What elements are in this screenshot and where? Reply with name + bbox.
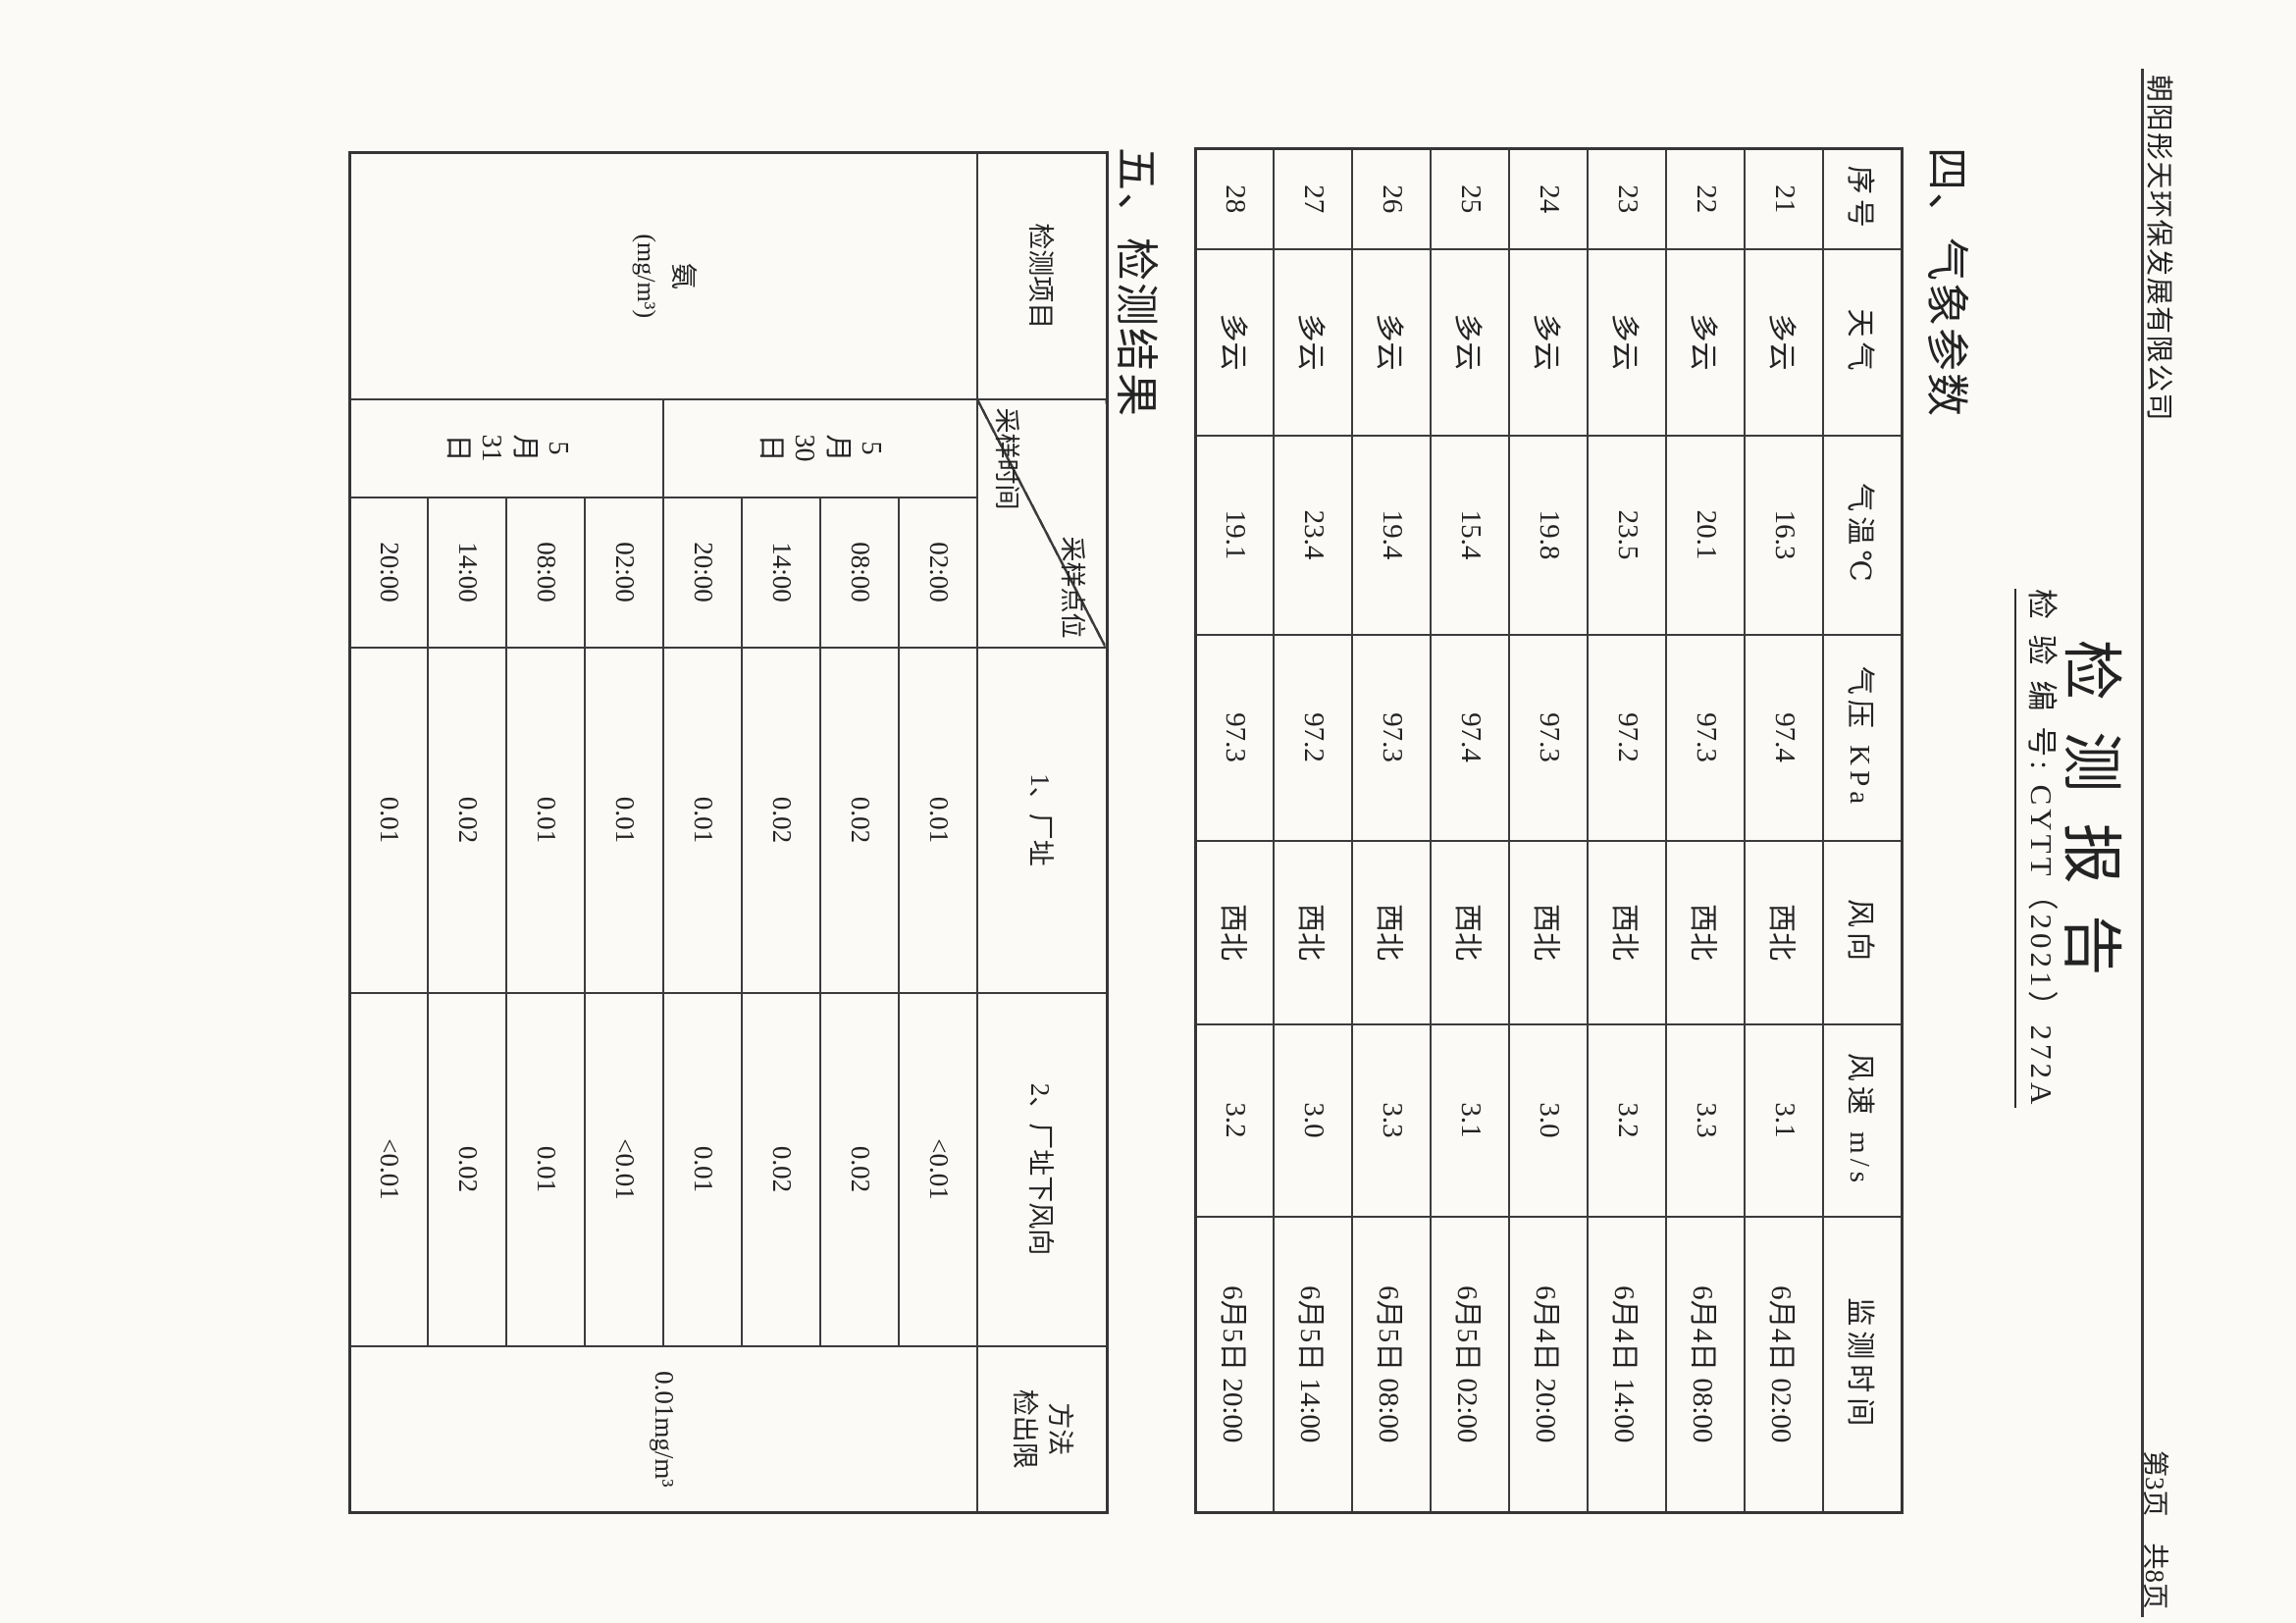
cell-temp: 23.4 [1275,436,1353,635]
cell-pressure: 97.2 [1275,635,1353,841]
cell-wind-speed: 3.0 [1510,1024,1589,1217]
cell-time: 20:00 [350,497,429,648]
cell-wind-dir: 西北 [1510,841,1589,1024]
weather-table-header-row: 序号 天气 气温℃ 气压 KPa 风向 风速 m/s 监测时间 [1824,149,1903,1513]
cell-time: 08:00 [821,497,900,648]
section-heading-results: 五、检测结果 [1109,147,1172,418]
cell-pressure: 97.4 [1432,635,1510,841]
table-row: 23 多云 23.5 97.2 西北 3.2 6月4日 14:00 [1589,149,1667,1513]
cell-seq: 27 [1275,149,1353,249]
cell-seq: 26 [1353,149,1432,249]
cell-temp: 19.4 [1353,436,1432,635]
cell-wind-speed: 3.3 [1667,1024,1746,1217]
col-header-seq: 序号 [1824,149,1903,249]
result-table-header-row: 检测项目 采样点位 采样时间 1、厂址 2、厂址下风向 方法 检出限 [978,153,1108,1513]
diagonal-label-sampling-point: 采样点位 [1056,536,1092,638]
cell-seq: 25 [1432,149,1510,249]
table-row: 21 多云 16.3 97.4 西北 3.1 6月4日 02:00 [1746,149,1824,1513]
cell-time: 02:00 [900,497,978,648]
col-header-temp: 气温℃ [1824,436,1903,635]
cell-time: 6月5日 08:00 [1353,1217,1432,1513]
cell-pressure: 97.3 [1196,635,1275,841]
cell-seq: 23 [1589,149,1667,249]
cell-time: 6月4日 14:00 [1589,1217,1667,1513]
col-header-site1: 1、厂址 [978,648,1108,993]
cell-time: 6月5日 20:00 [1196,1217,1275,1513]
cell-temp: 15.4 [1432,436,1510,635]
table-row: 28 多云 19.1 97.3 西北 3.2 6月5日 20:00 [1196,149,1275,1513]
cell-site2-value: <0.01 [900,993,978,1346]
cell-weather: 多云 [1589,249,1667,436]
result-table: 检测项目 采样点位 采样时间 1、厂址 2、厂址下风向 方法 检出限 氨 (mg… [348,151,1109,1514]
cell-wind-dir: 西北 [1667,841,1746,1024]
cell-wind-dir: 西北 [1353,841,1432,1024]
detection-limit-value-cell: 0.01mg/m³ [350,1346,978,1513]
cell-site1-value: 0.02 [743,648,821,993]
cell-temp: 20.1 [1667,436,1746,635]
cell-wind-speed: 3.2 [1589,1024,1667,1217]
cell-wind-dir: 西北 [1432,841,1510,1024]
diagonal-label-sampling-time: 采样时间 [991,408,1027,510]
cell-wind-speed: 3.3 [1353,1024,1432,1217]
scanned-report-page: 朝阳彤天环保发展有限公司 第3页 共8页 检 测 报 告 检 验 编 号: CY… [0,0,2296,1623]
cell-seq: 21 [1746,149,1824,249]
cell-site1-value: 0.01 [586,648,664,993]
cell-time: 20:00 [664,497,743,648]
cell-wind-speed: 3.2 [1196,1024,1275,1217]
weather-table: 序号 天气 气温℃ 气压 KPa 风向 风速 m/s 监测时间 21 多云 16… [1194,147,1904,1514]
cell-site2-value: <0.01 [350,993,429,1346]
cell-wind-dir: 西北 [1275,841,1353,1024]
detection-limit-line2: 检出限 [1007,1347,1042,1512]
cell-seq: 28 [1196,149,1275,249]
company-name: 朝阳彤天环保发展有限公司 [2141,75,2180,422]
cell-weather: 多云 [1667,249,1746,436]
col-header-site2: 2、厂址下风向 [978,993,1108,1346]
cell-site1-value: 0.01 [900,648,978,993]
cell-time: 08:00 [507,497,586,648]
cell-weather: 多云 [1432,249,1510,436]
table-row: 24 多云 19.8 97.3 西北 3.0 6月4日 20:00 [1510,149,1589,1513]
col-header-weather: 天气 [1824,249,1903,436]
cell-time: 6月5日 14:00 [1275,1217,1353,1513]
col-header-wind-speed: 风速 m/s [1824,1024,1903,1217]
cell-time: 02:00 [586,497,664,648]
sample-item-cell: 氨 (mg/m³) [350,153,978,399]
detection-limit-line1: 方法 [1042,1347,1077,1512]
cell-time: 6月4日 20:00 [1510,1217,1589,1513]
cell-site2-value: 0.01 [664,993,743,1346]
cell-site1-value: 0.01 [664,648,743,993]
sample-item-unit: (mg/m³) [627,154,664,398]
cell-site2-value: 0.02 [743,993,821,1346]
cell-site1-value: 0.01 [507,648,586,993]
table-row: 22 多云 20.1 97.3 西北 3.3 6月4日 08:00 [1667,149,1746,1513]
cell-temp: 23.5 [1589,436,1667,635]
col-header-detection-limit: 方法 检出限 [978,1346,1108,1513]
cell-wind-speed: 3.1 [1746,1024,1824,1217]
cell-weather: 多云 [1196,249,1275,436]
cell-wind-speed: 3.0 [1275,1024,1353,1217]
sample-item-name: 氨 [664,154,702,398]
diagonal-header-cell: 采样点位 采样时间 [978,399,1108,648]
cell-temp: 19.8 [1510,436,1589,635]
cell-pressure: 97.3 [1667,635,1746,841]
cell-time: 14:00 [743,497,821,648]
cell-weather: 多云 [1353,249,1432,436]
cell-seq: 24 [1510,149,1589,249]
cell-site1-value: 0.01 [350,648,429,993]
section-heading-weather: 四、气象参数 [1919,147,1982,418]
cell-weather: 多云 [1275,249,1353,436]
cell-site2-value: <0.01 [586,993,664,1346]
cell-wind-dir: 西北 [1196,841,1275,1024]
date-cell-may31: 5 月 31 日 [350,399,664,497]
cell-wind-dir: 西北 [1589,841,1667,1024]
col-header-time: 监测时间 [1824,1217,1903,1513]
table-row: 25 多云 15.4 97.4 西北 3.1 6月5日 02:00 [1432,149,1510,1513]
cell-wind-speed: 3.1 [1432,1024,1510,1217]
cell-wind-dir: 西北 [1746,841,1824,1024]
cell-site1-value: 0.02 [821,648,900,993]
cell-time: 6月4日 02:00 [1746,1217,1824,1513]
cell-weather: 多云 [1510,249,1589,436]
cell-time: 14:00 [429,497,507,648]
date-cell-may30: 5 月 30 日 [664,399,978,497]
cell-site2-value: 0.02 [821,993,900,1346]
table-row: 氨 (mg/m³) 5 月 30 日 02:00 0.01 <0.01 0.01… [900,153,978,1513]
col-header-pressure: 气压 KPa [1824,635,1903,841]
col-header-item: 检测项目 [978,153,1108,399]
col-header-wind-dir: 风向 [1824,841,1903,1024]
cell-pressure: 97.3 [1353,635,1432,841]
cell-time: 6月5日 02:00 [1432,1217,1510,1513]
cell-site2-value: 0.02 [429,993,507,1346]
cell-pressure: 97.2 [1589,635,1667,841]
cell-temp: 16.3 [1746,436,1824,635]
cell-pressure: 97.3 [1510,635,1589,841]
cell-site2-value: 0.01 [507,993,586,1346]
cell-weather: 多云 [1746,249,1824,436]
cell-time: 6月4日 08:00 [1667,1217,1746,1513]
cell-temp: 19.1 [1196,436,1275,635]
cell-pressure: 97.4 [1746,635,1824,841]
cell-site1-value: 0.02 [429,648,507,993]
cell-seq: 22 [1667,149,1746,249]
header-rule [2141,69,2144,1617]
table-row: 27 多云 23.4 97.2 西北 3.0 6月5日 14:00 [1275,149,1353,1513]
table-row: 26 多云 19.4 97.3 西北 3.3 6月5日 08:00 [1353,149,1432,1513]
report-number: 检 验 编 号: CYTT（2021）272A [2014,589,2066,1108]
